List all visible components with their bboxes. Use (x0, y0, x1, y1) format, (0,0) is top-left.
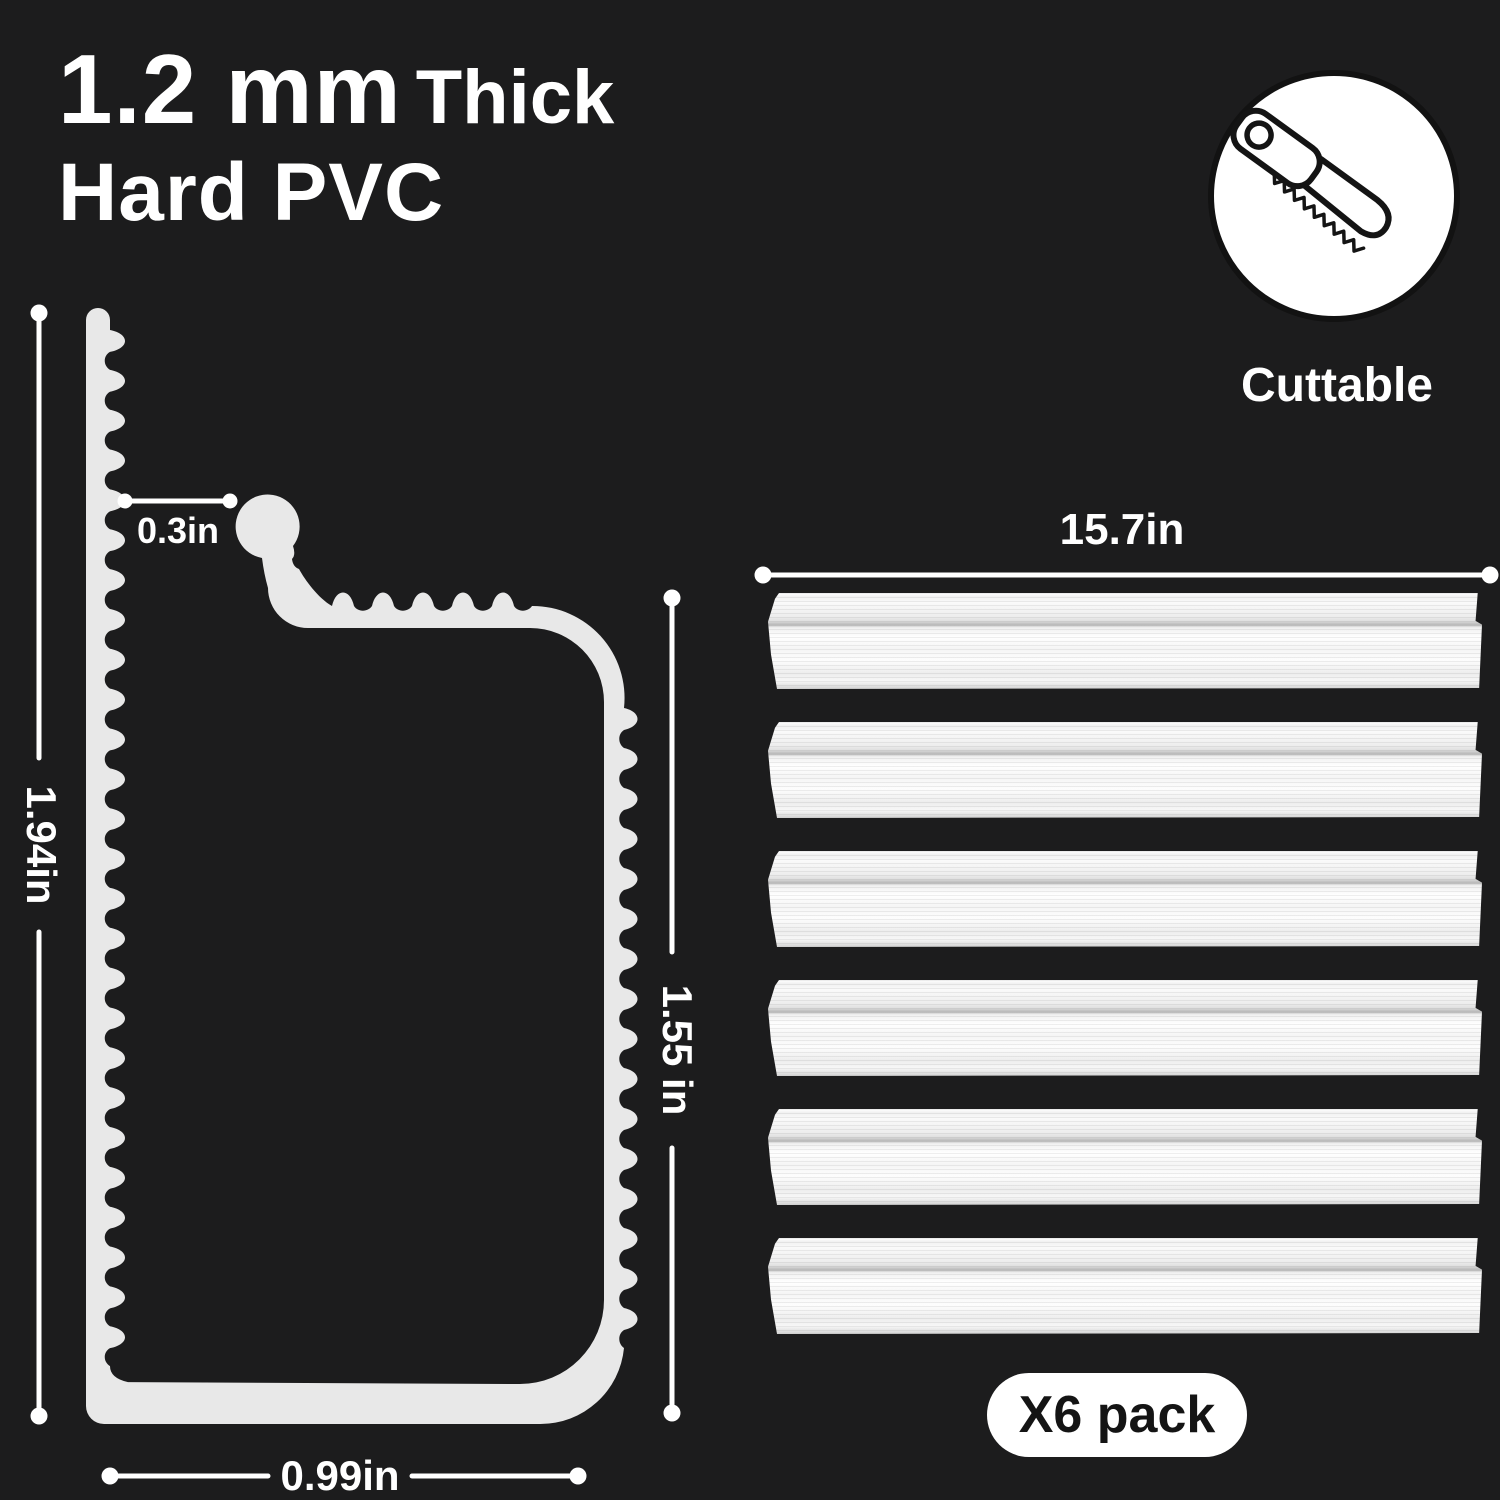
pvc-profile-shape (86, 308, 638, 1424)
pvc-strip (768, 722, 1482, 818)
pvc-strip (768, 1238, 1482, 1334)
dimension-gap-label: 0.3in (137, 510, 219, 552)
dimension-channel-height-label: 1.55 in (653, 985, 701, 1116)
pvc-strip (768, 851, 1482, 947)
pvc-strip (768, 1109, 1482, 1205)
dimension-height-label: 1.94in (17, 785, 65, 904)
dimension-length-label: 15.7in (1060, 505, 1185, 555)
pvc-strip (768, 593, 1482, 689)
pack-count-badge: X6 pack (987, 1373, 1247, 1457)
dimension-width-label: 0.99in (280, 1452, 399, 1500)
pack-count-label: X6 pack (1019, 1385, 1216, 1445)
pvc-strip (768, 980, 1482, 1076)
